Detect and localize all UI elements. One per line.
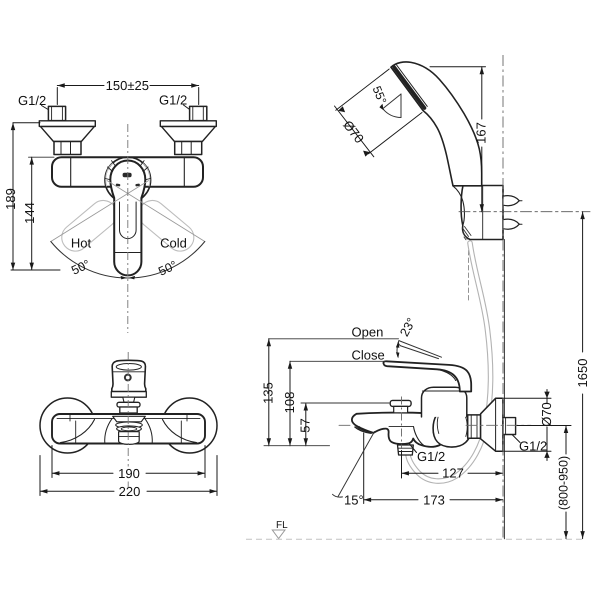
svg-text:Open: Open bbox=[352, 324, 384, 339]
svg-text:(800-950): (800-950) bbox=[557, 456, 571, 510]
svg-text:FL: FL bbox=[276, 520, 288, 531]
svg-text:G1/2: G1/2 bbox=[417, 449, 445, 464]
svg-text:108: 108 bbox=[282, 392, 297, 414]
svg-text:Cold: Cold bbox=[160, 236, 187, 251]
svg-text:Ø70: Ø70 bbox=[539, 402, 554, 427]
svg-text:Hot: Hot bbox=[71, 236, 92, 251]
svg-text:150±25: 150±25 bbox=[106, 78, 149, 93]
svg-text:15°: 15° bbox=[344, 493, 364, 508]
svg-text:190: 190 bbox=[118, 466, 140, 481]
svg-text:127: 127 bbox=[442, 466, 464, 481]
svg-text:G1/2: G1/2 bbox=[159, 93, 187, 108]
svg-text:189: 189 bbox=[3, 188, 18, 210]
svg-text:144: 144 bbox=[22, 202, 37, 224]
svg-text:1650: 1650 bbox=[575, 359, 590, 388]
svg-text:167: 167 bbox=[474, 122, 489, 144]
svg-text:57: 57 bbox=[298, 418, 313, 432]
svg-text:173: 173 bbox=[423, 492, 445, 507]
svg-text:Close: Close bbox=[352, 347, 385, 362]
svg-text:135: 135 bbox=[261, 382, 276, 404]
svg-text:220: 220 bbox=[119, 484, 141, 499]
